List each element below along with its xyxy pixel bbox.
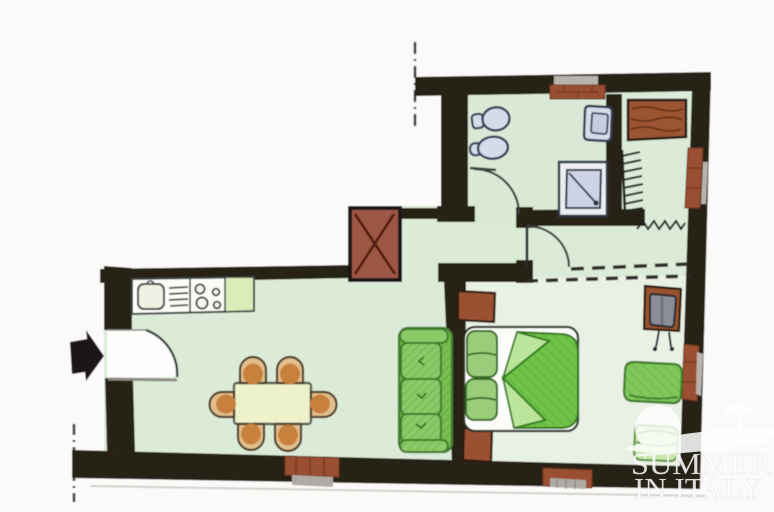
svg-text:40: 40 (747, 415, 759, 429)
svg-text:IN ITALY: IN ITALY (634, 474, 762, 505)
